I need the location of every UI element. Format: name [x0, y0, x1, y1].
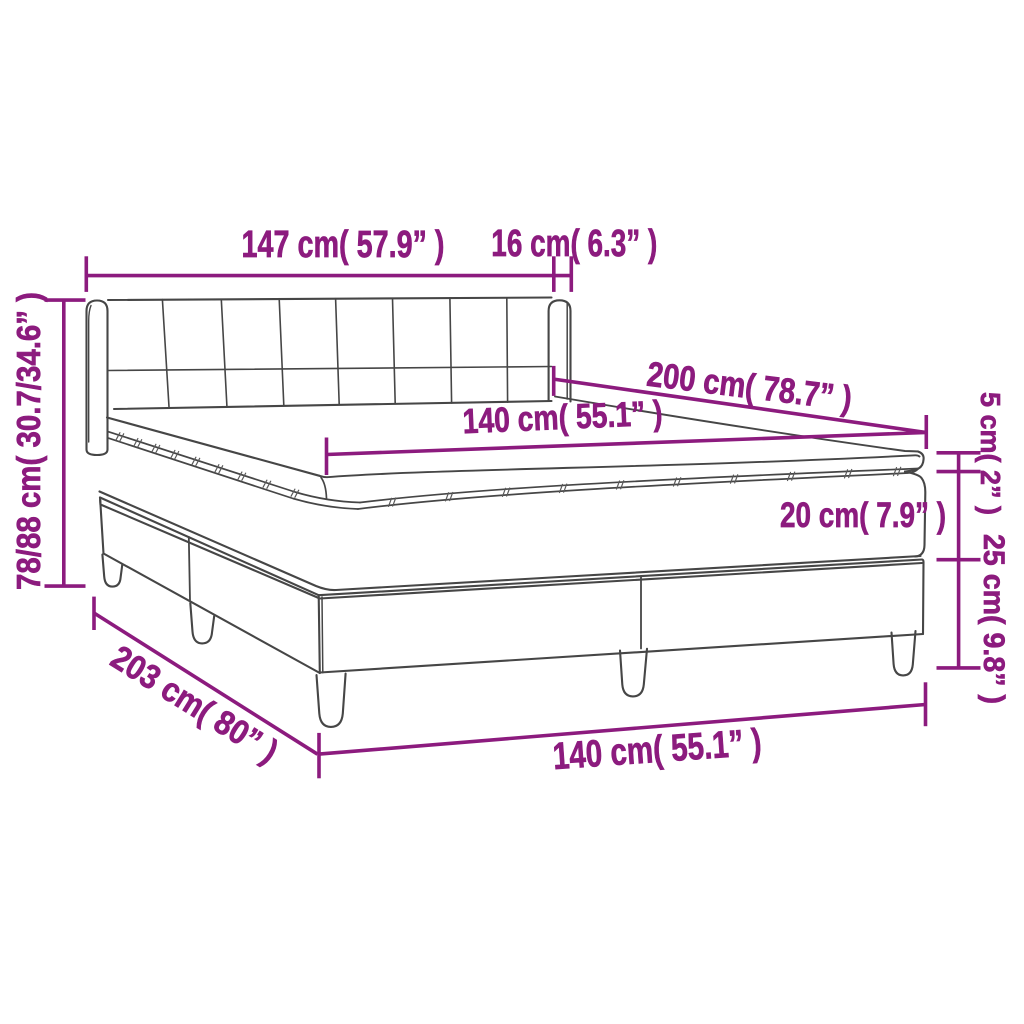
- svg-text:20 cm( 7.9” ): 20 cm( 7.9” ): [780, 496, 946, 535]
- svg-text:147 cm( 57.9” ): 147 cm( 57.9” ): [242, 224, 445, 266]
- svg-text:78/88 cm( 30.7/34.6” ): 78/88 cm( 30.7/34.6” ): [10, 292, 47, 590]
- svg-text:16 cm( 6.3” ): 16 cm( 6.3” ): [491, 223, 657, 265]
- svg-text:5 cm( 2” ): 5 cm( 2” ): [975, 392, 1006, 515]
- svg-text:25 cm( 9.8” ): 25 cm( 9.8” ): [977, 534, 1010, 704]
